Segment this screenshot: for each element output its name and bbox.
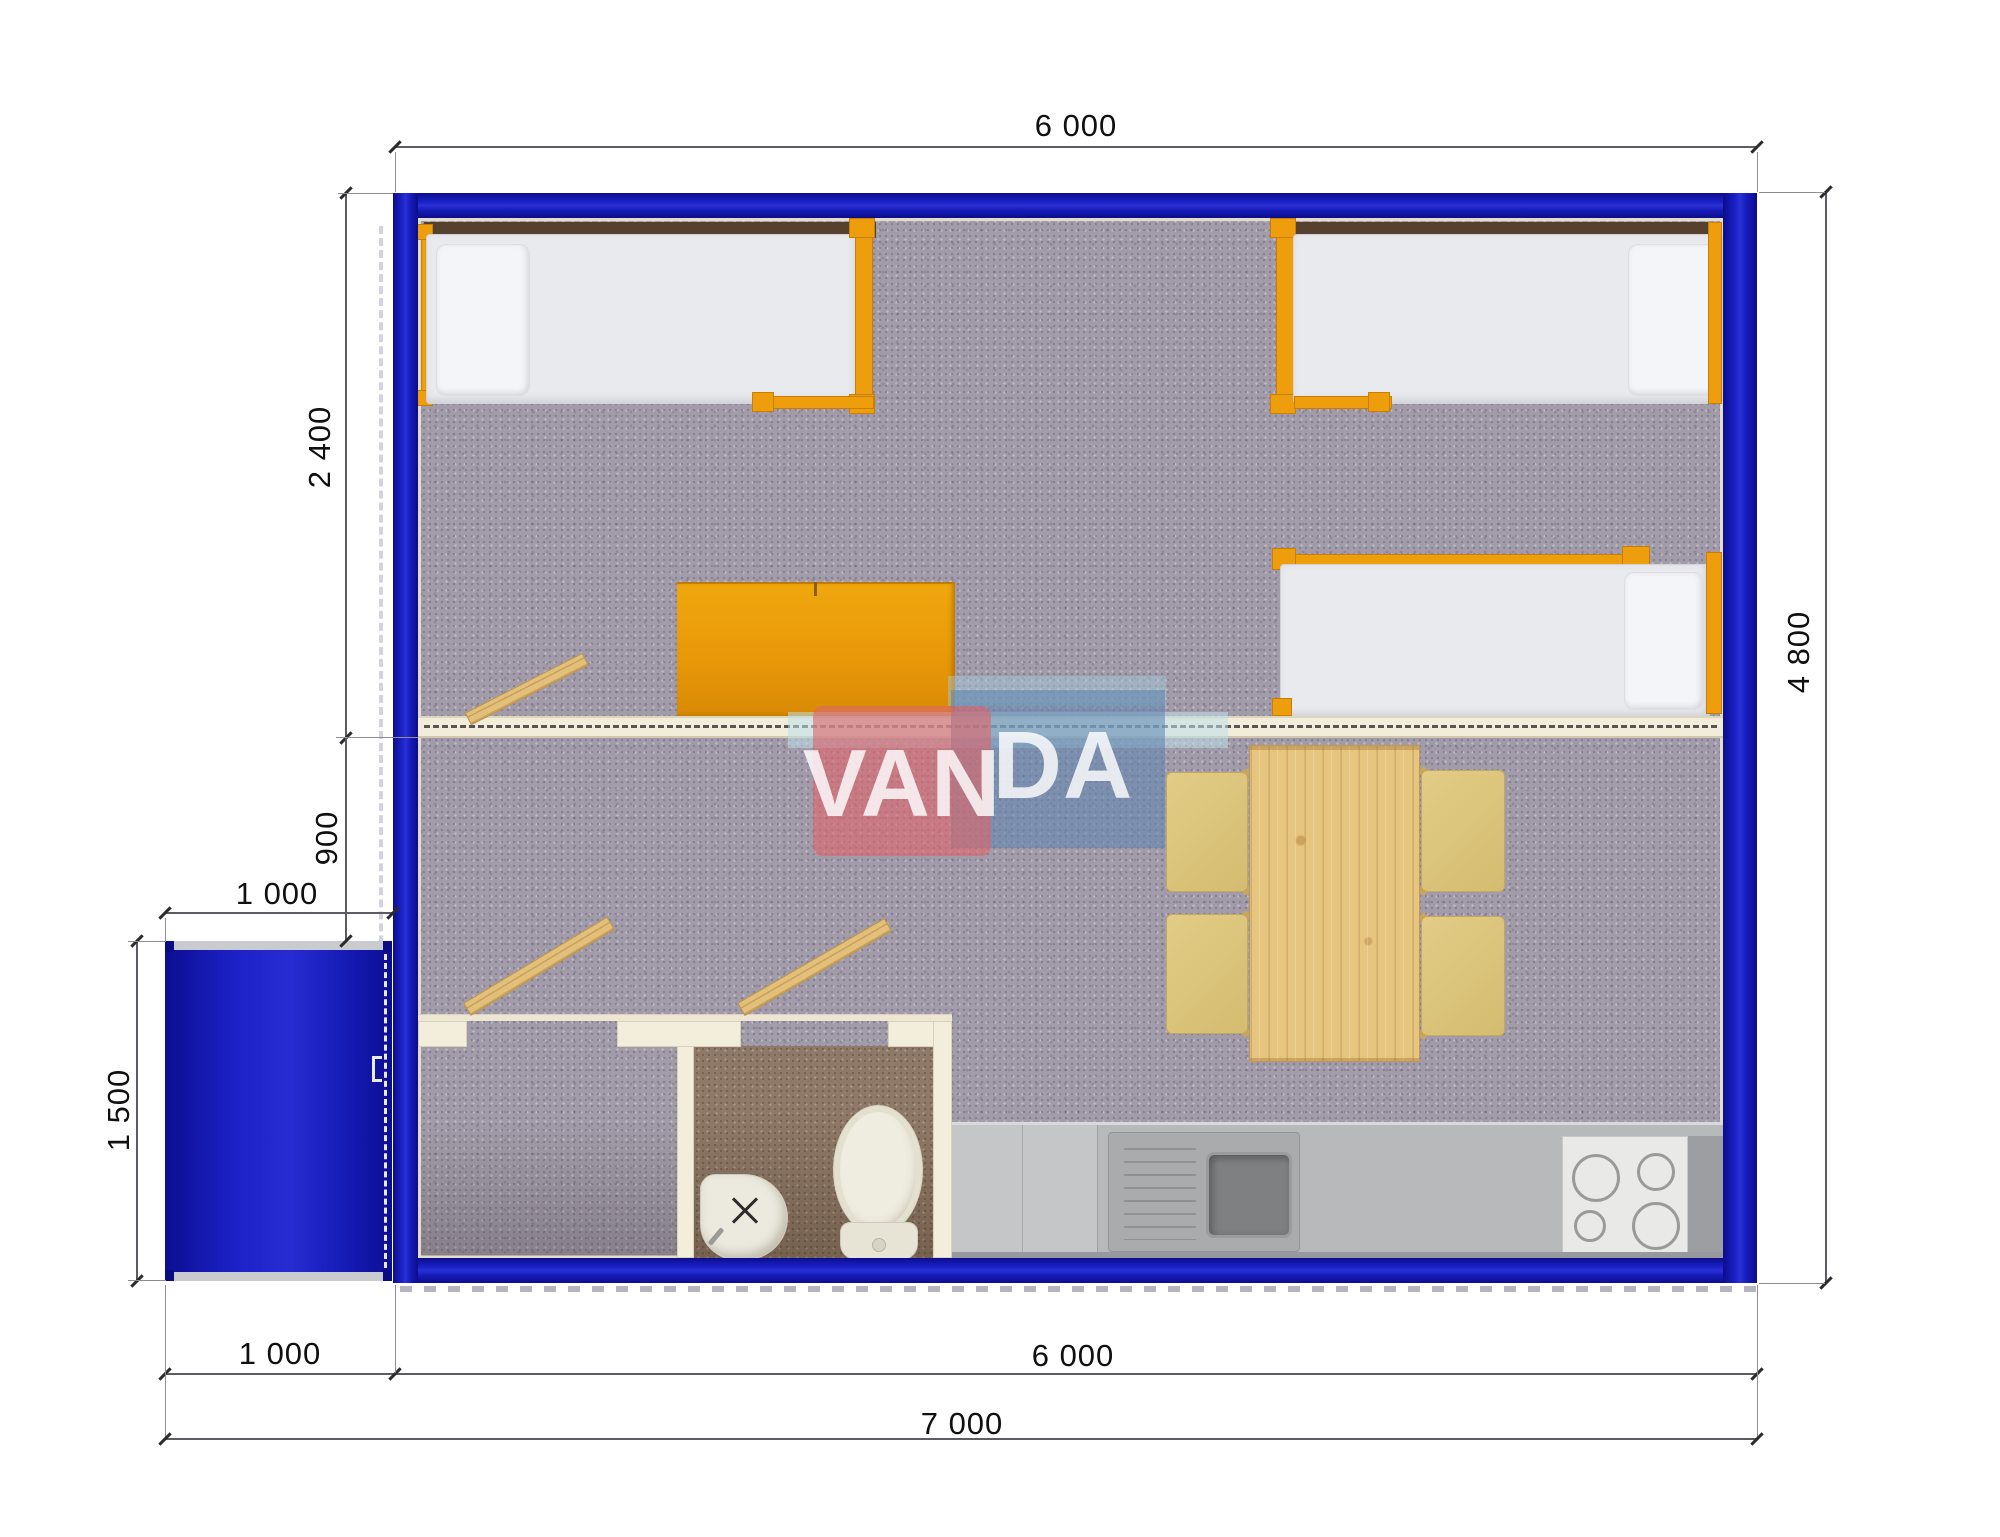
dim-right-line (1825, 192, 1827, 1283)
burner-bottom-right (1632, 1202, 1680, 1250)
wall-top (393, 193, 1757, 218)
watermark-text-da: DA (993, 711, 1134, 821)
floor-plan-canvas: VAN DA 6 000 4 800 2 400 900 1 000 1 500… (0, 0, 2000, 1537)
bed1-foot-rail (855, 222, 873, 412)
bed1-bottom-post (752, 392, 774, 412)
burner-bottom-left (1574, 1210, 1606, 1242)
porch-corner-post (165, 1270, 174, 1281)
chair-left-top (1166, 772, 1248, 892)
wall-bottom-seam (400, 1286, 1757, 1292)
desk-seam (814, 582, 817, 596)
bed2-right-rail (1708, 222, 1722, 404)
dim-label-total-width: 7 000 (921, 1406, 1004, 1442)
dim-bottom-line-1 (165, 1373, 1757, 1375)
dim-hall-line (345, 738, 347, 941)
toilet-tank-lid (833, 1105, 923, 1235)
dim-bedroom-line (345, 193, 347, 738)
bath-wall-divider (677, 1046, 694, 1258)
dining-table (1249, 745, 1420, 1062)
kitchen-cabinet-seam (1022, 1125, 1023, 1258)
dim-label-porch-depth: 1 500 (101, 1069, 137, 1152)
burner-top-left (1572, 1154, 1620, 1202)
bed3-post-bottom-left (1272, 698, 1292, 716)
dim-ext (395, 152, 396, 192)
dim-label-right-height: 4 800 (1781, 611, 1817, 694)
toilet-flush-button (872, 1238, 886, 1252)
chair-right-bottom (1421, 916, 1505, 1036)
bed2-bottom-post (1368, 392, 1390, 412)
watermark-text-van: VAN (803, 729, 1002, 839)
entrance-door-line (384, 954, 387, 1268)
dim-top-line (395, 146, 1757, 148)
bath-wall-segment-left (418, 1021, 467, 1047)
dim-label-hall-depth: 900 (309, 811, 345, 866)
porch-corner-post (165, 941, 174, 952)
washbasin (700, 1174, 788, 1260)
dim-ext (165, 1285, 166, 1438)
desk (677, 582, 955, 716)
dim-ext (338, 193, 393, 194)
dim-label-bottom-building-width: 6 000 (1032, 1338, 1115, 1374)
chair-right-top (1421, 770, 1505, 892)
bed2-pillow (1628, 244, 1718, 396)
burner-top-right (1637, 1153, 1675, 1191)
wall-left (393, 193, 418, 1283)
porch (165, 941, 392, 1281)
bed1-foot-post-top (849, 218, 875, 238)
dim-ext (1757, 152, 1758, 192)
bed2-head-post-top (1270, 218, 1296, 238)
dim-ext (128, 1280, 166, 1281)
dim-ext (336, 737, 418, 738)
kitchen-drainboard (1124, 1148, 1196, 1240)
dim-ext (128, 941, 166, 942)
porch-threshold-bottom (172, 1272, 388, 1281)
dim-label-bottom-porch-width: 1 000 (239, 1336, 322, 1372)
dim-ext (1759, 1283, 1825, 1284)
bed2-head-rail (1276, 222, 1294, 412)
chair-left-bottom (1166, 914, 1248, 1034)
bed3-right-rail (1706, 552, 1722, 714)
counter-end-dark (1688, 1136, 1723, 1258)
bath-wall-lintel (418, 1014, 952, 1021)
storage-room-shade (421, 1046, 677, 1256)
dim-ext (1759, 192, 1825, 193)
dim-label-top-width: 6 000 (1035, 108, 1118, 144)
wall-bottom (393, 1258, 1757, 1283)
porch-corner-post (383, 1270, 392, 1281)
dim-ext (165, 918, 166, 941)
dim-ext (395, 1285, 396, 1373)
kitchen-sink-basin (1206, 1152, 1292, 1238)
dim-porch-width-line (165, 912, 393, 914)
entrance-door-handle (372, 1056, 382, 1082)
kitchen-cabinet (952, 1125, 1098, 1258)
bath-wall-segment-mid (617, 1021, 741, 1047)
porch-corner-post (383, 941, 392, 952)
wall-right (1723, 193, 1757, 1283)
bed1-pillow (436, 244, 530, 396)
dim-label-porch-width: 1 000 (236, 876, 319, 912)
dim-label-bedroom-depth: 2 400 (302, 406, 338, 489)
porch-threshold-top (172, 941, 388, 950)
dim-ext (1757, 1285, 1758, 1438)
bed3-pillow (1624, 572, 1704, 710)
bed1-bottom-rail (758, 396, 874, 409)
bath-wall-right (933, 1021, 952, 1258)
